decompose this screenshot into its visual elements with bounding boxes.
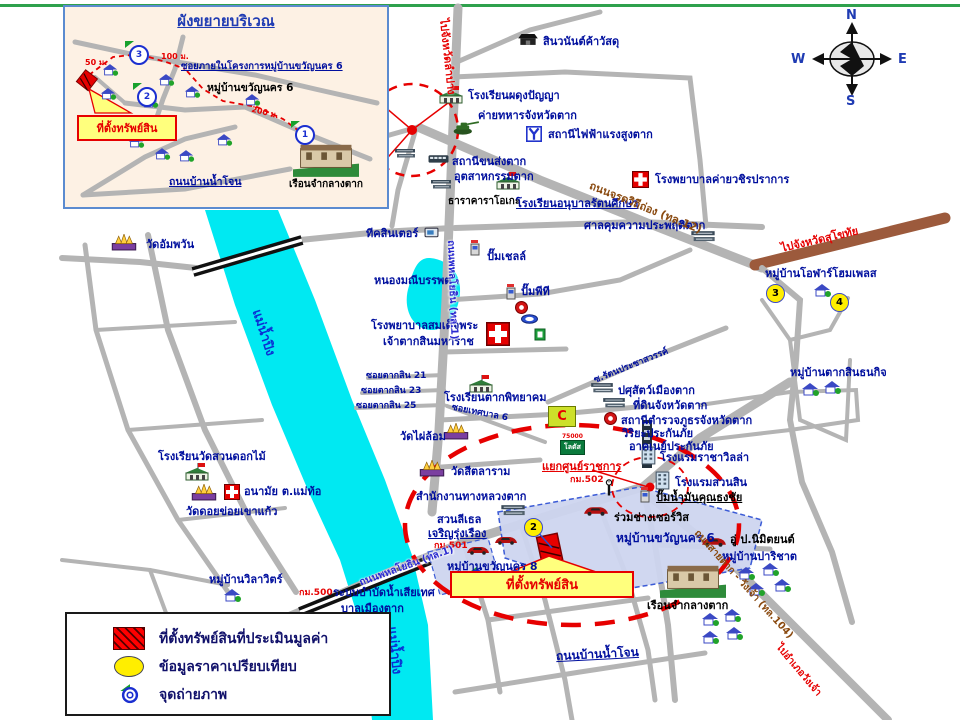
compass-w: W [791,52,805,67]
photo-point-icon [119,682,141,704]
house-icon [99,87,117,100]
legend-box: ที่ตั้งทรัพย์สินที่ประเมินมูลค่า ข้อมูลร… [65,612,391,716]
point-number: 1 [302,130,308,140]
house-icon [153,147,171,160]
government-building-icon [430,179,452,191]
point-number: 2 [144,92,150,102]
legend-row-property: ที่ตั้งทรัพย์สินที่ประเมินมูลค่า [67,624,389,650]
label-wilawit: หมู่บ้านวิลาวิตร์ [209,574,283,586]
label-takpit-school: โรงเรียนตากพิทยาคม [444,392,547,404]
legend-photo-label: จุดถ่ายภาพ [159,684,227,706]
photo-point-2: 2 [137,87,157,107]
government-building-icon [500,504,526,518]
label-phadung-school: โรงเรียนผดุงปัญญา [468,90,560,102]
property-callout: ที่ตั้งทรัพย์สิน [450,571,634,598]
property-swatch [113,627,145,650]
label-nimit-garage: อู่ ป.นิมิตยนต์ [730,534,795,546]
house-icon [177,149,195,162]
government-building-icon [394,148,416,160]
marker-number: 2 [530,522,537,533]
label-hotel-suansin: โรงแรมสวนสิน [675,477,747,489]
compare-marker-2: 2 [524,518,543,537]
temple-icon [110,234,138,251]
inset-property-callout: ที่ตั้งทรัพย์สิน [77,115,177,141]
legend-property-label: ที่ตั้งทรัพย์สินที่ประเมินมูลค่า [159,628,328,650]
label-livestock: ปศุสัตว์เมืองตาก [618,385,695,397]
store-icon [518,34,538,46]
label-wastewater-1: ระบบบำบัดน้ำเสียเทศ [333,587,435,599]
health-center-icon [224,484,240,500]
shop-icon-blue [521,314,538,324]
inset-title: ผังขยายบริเวณ [65,9,387,33]
bus-station-icon [428,154,449,165]
bigc-sign: C [548,406,576,427]
marker-number: 3 [772,288,779,299]
hospital-icon [486,322,510,346]
label-camp-hospital: โรงพยาบาลค่ายวชิรปราการ [655,174,789,186]
label-lake: หนองมณีบรรพต [374,275,451,287]
temple-icon [190,484,218,501]
label-sinwanan: สินวนันต์ค้าวัสดุ [543,36,619,48]
label-taksin-thanakit: หมู่บ้านตากสินธนกิจ [790,367,887,379]
label-charoen: เจริญรุ่งเรือง [428,528,486,540]
house-icon [800,382,820,396]
gas-station-icon [469,240,481,256]
marker-number: 4 [836,297,843,308]
label-prison: เรือนจำกลางตาก [647,600,728,612]
house-icon [760,562,780,576]
compass-s: S [846,94,855,109]
label-army-camp: ค่ายทหารจังหวัดตาก [478,110,577,122]
label-garage: ร่วมช่างเซอร์วิส [614,512,689,524]
compare-marker-4: 4 [830,293,849,312]
inset-dist-50: 50 ม. [85,59,107,68]
temple-icon [418,460,446,477]
label-teak-center: ทีคสินเตอร์ [366,228,418,240]
house-icon [700,630,720,644]
house-icon [724,626,744,640]
label-pt-station: ปั๊มพีที [521,286,550,298]
house-icon [822,380,842,394]
tank-icon [452,120,480,135]
inset-road-label: ถนนบ้านน้ำโจน [169,177,242,189]
inset-property-text: ที่ตั้งทรัพย์สิน [97,119,158,137]
government-building-icon [602,397,626,410]
label-police-station: สถานีตำรวจภูธรจังหวัดตาก [621,415,752,427]
house-icon [215,133,233,146]
house-icon [222,588,242,602]
bigc-letter: C [557,409,567,424]
label-power-station: สถานีไฟฟ้าแรงสูงตาก [548,129,653,141]
compass-graphic [795,12,910,107]
house-icon [812,283,832,297]
compass-e: E [898,52,907,67]
label-bus-terminal: สถานีขนส่งตาก [452,156,526,168]
photo-point-3: 3 [129,45,149,65]
label-soi-taksin-25: ซอยตากสิน 25 [356,402,416,412]
legend-row-compare: ข้อมูลราคาเปรียบเทียบ [67,652,389,678]
lotus-text: โลตัส [560,440,585,455]
hotel-icon [654,471,671,490]
label-anamai: อนามัย ต.แม่ท้อ [244,486,321,498]
gas-station-icon [505,284,517,300]
legend-compare-label: ข้อมูลราคาเปรียบเทียบ [159,656,297,678]
house-icon [700,612,720,626]
property-callout-text: ที่ตั้งทรัพย์สิน [506,574,578,595]
point-number: 3 [136,50,142,60]
label-wat-ampawan: วัดอัมพวัน [146,239,194,251]
label-km502: กม.502 [570,476,604,486]
label-soi-taksin-23: ซอยตากสิน 23 [361,387,421,397]
compass-n: N [846,8,857,23]
label-highway-office: สำนักงานทางหลวงตาก [416,491,526,503]
inset-soi-label: ซอยภายในโครงการหมู่บ้านขวัญนคร 6 [181,62,343,72]
compare-marker-3: 3 [766,284,785,303]
label-soi-taksin-21: ซอยตากสิน 21 [366,372,426,382]
temple-icon [442,423,470,440]
label-industry-office: อุตสาหกรรมตาก [454,171,534,183]
label-karaoke: ธาราคาราโอเกะ [448,196,520,207]
car-icon [494,534,518,545]
label-parichat: หมู่บ้านปาริชาต [722,551,797,563]
school-icon [184,463,210,481]
compass-rose: N S W E [795,12,910,107]
clock-tower-icon [604,479,614,496]
map-page: C 75000 โลตัส 1 2 3 4 ที่ตั้งทรัพย์สิน ส… [0,0,960,720]
label-olan-homeplace: หมู่บ้านโอฬาร์โฮมเพลส [765,268,877,280]
house-icon [183,85,201,98]
label-wat-phai: วัดไผ่ล้อม [400,431,446,443]
inset-prison-label: เรือนจำกลางตาก [289,179,363,190]
label-suanlethel: สวนลีเธล [437,514,481,526]
label-wat-sitalaram: วัดสีตลาราม [451,466,510,478]
legend-row-photo: จุดถ่ายภาพ [67,678,389,704]
label-wat-doi: วัดดอยข่อยเขาแก้ว [186,506,277,518]
tv-shop-icon [424,227,439,239]
store-icon-green [534,328,546,341]
label-km500: กม.500 [299,589,333,599]
compare-swatch [114,656,144,677]
inset-village-label: หมู่บ้านขวัญนคร 6 [207,83,293,95]
power-station-icon [526,126,542,142]
inset-plan: ผังขยายบริเวณ [63,5,389,209]
car-icon [466,544,490,555]
label-land-office: ที่ดินจังหวัดตาก [633,400,707,412]
house-icon [772,578,792,592]
label-taksin-hospital-1: โรงพยาบาลสมเด็จพระ [371,320,478,332]
label-viriya: วิริยะประกันภัย [622,428,693,440]
photo-point-1: 1 [295,125,315,145]
prison-building-icon [660,560,726,598]
police-station-icon [604,412,617,425]
label-gas-thongchai: ปั๊มน้ำมันคุณธงชัย [656,492,742,504]
lotus-sign: 75000 โลตัส [560,433,585,455]
car-icon [583,504,609,516]
lotus-number: 75000 [560,433,585,440]
label-hotel-racha: โรงแรมราชาวิลล่า [660,452,749,464]
shop-icon-red [515,301,528,314]
label-junction: แยกศูนย์ราชการ [542,461,621,473]
house-icon [157,73,175,86]
label-suandok-school: โรงเรียนวัดสวนดอกไม้ [158,451,266,463]
label-shell-station: ปั๊มเชลล์ [487,251,526,263]
label-taksin-hospital-2: เจ้าตากสินมหาราช [383,336,474,348]
gas-station-icon [639,487,651,503]
hospital-icon [632,171,649,188]
